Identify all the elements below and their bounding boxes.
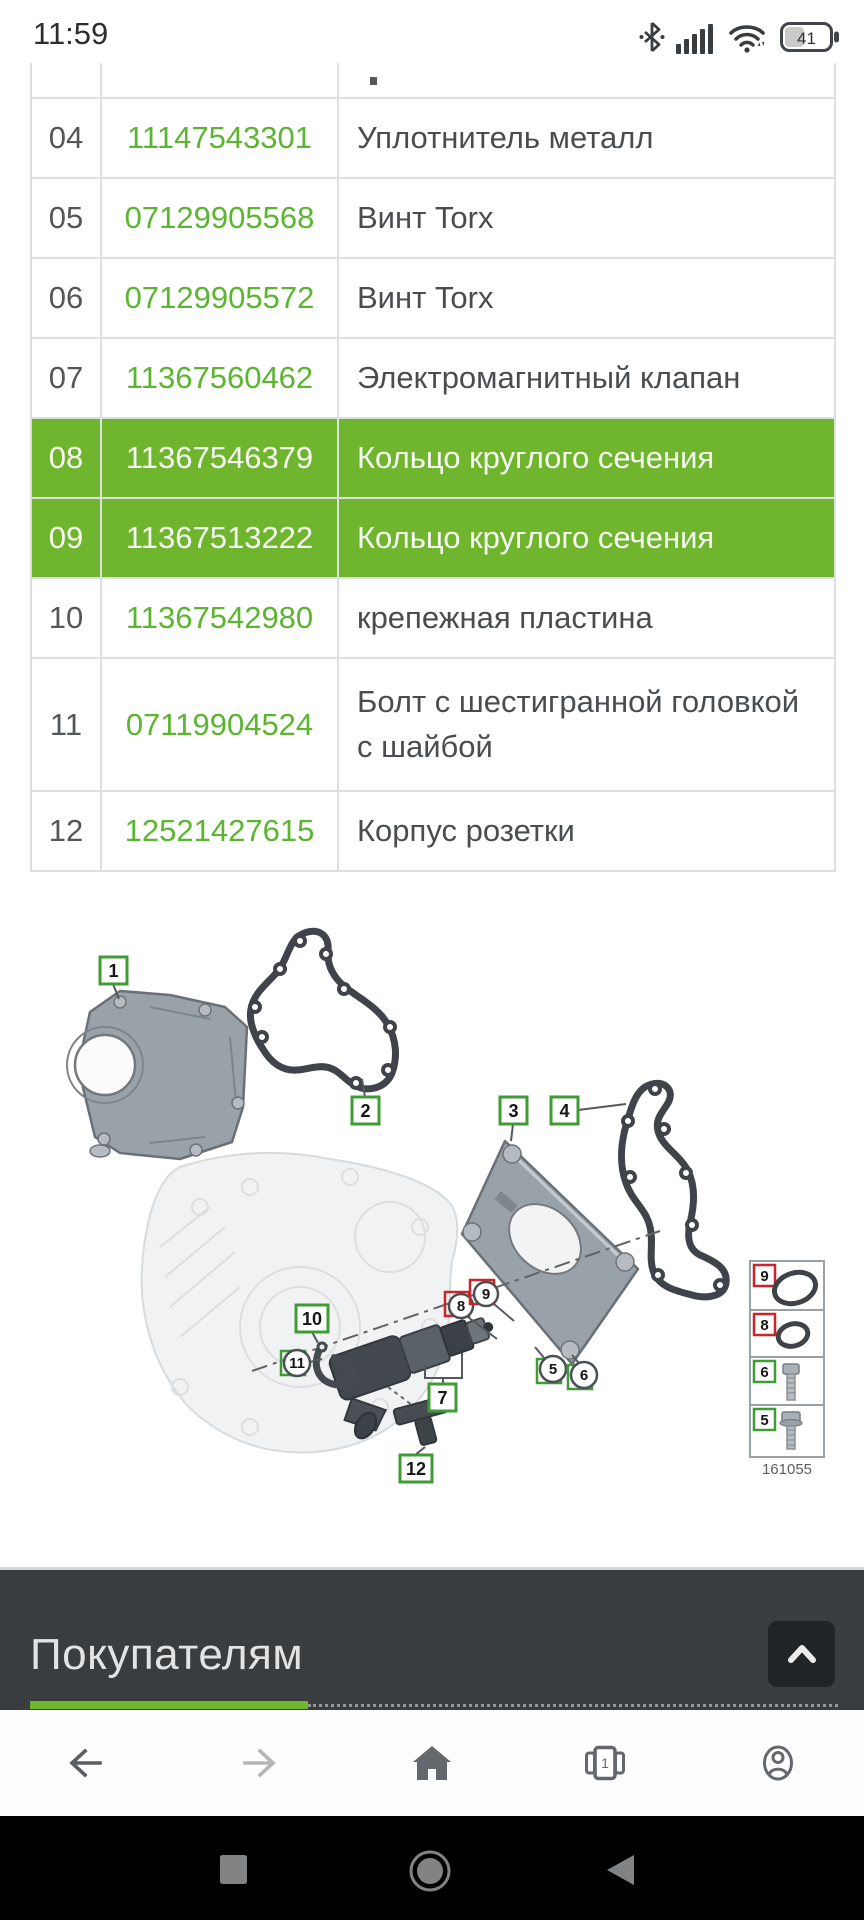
android-home-button[interactable] — [408, 1849, 452, 1893]
table-row-truncated — [31, 63, 835, 98]
truncated-text-fragment — [370, 77, 377, 85]
status-bar: 11:59 — [0, 0, 864, 63]
part-number-link[interactable]: 12521427615 — [125, 813, 315, 848]
svg-text:4: 4 — [559, 1101, 569, 1121]
table-row: 1212521427615Корпус розетки — [31, 791, 835, 871]
diagram-legend: 9 8 6 5 — [750, 1261, 824, 1478]
figure-number: 161055 — [762, 1461, 812, 1478]
table-row: 0411147543301Уплотнитель металл — [31, 98, 835, 178]
legend-label: 9 — [760, 1268, 768, 1285]
svg-text:5: 5 — [549, 1361, 557, 1378]
callout-4[interactable]: 4 — [551, 1097, 578, 1124]
android-navigation-bar — [0, 1816, 864, 1920]
row-number-cell: 10 — [31, 578, 101, 658]
footer-section: Покупателям — [0, 1570, 864, 1710]
svg-text:10: 10 — [302, 1309, 322, 1329]
profile-button[interactable] — [756, 1741, 800, 1785]
browser-toolbar: 1 — [0, 1710, 864, 1816]
tabs-button[interactable]: 1 — [583, 1741, 627, 1785]
part-description-cell: крепежная пластина — [338, 578, 835, 658]
back-button[interactable] — [64, 1741, 108, 1785]
cellular-signal-icon — [676, 20, 716, 54]
status-icons: 41 — [639, 20, 842, 54]
part-description-cell: Кольцо круглого сечения — [338, 498, 835, 578]
part-number-link[interactable]: 07129905568 — [125, 200, 315, 235]
part-number-link[interactable]: 07119904524 — [126, 707, 313, 742]
svg-text:2: 2 — [360, 1101, 370, 1121]
callout-7[interactable]: 7 — [429, 1384, 456, 1411]
legend-label: 6 — [760, 1364, 768, 1381]
footer-dotted-line — [308, 1704, 838, 1707]
parts-table: 0411147543301Уплотнитель металл050712990… — [30, 63, 834, 872]
row-number-cell: 06 — [31, 258, 101, 338]
callout-1[interactable]: 1 — [100, 957, 127, 984]
legend-label: 5 — [760, 1412, 768, 1429]
table-row: 1011367542980крепежная пластина — [31, 578, 835, 658]
parts-diagram: 1 2 3 4 5 — [0, 907, 864, 1567]
part-number-link[interactable]: 11367560462 — [126, 360, 313, 395]
svg-text:3: 3 — [508, 1101, 518, 1121]
table-row: 1107119904524Болт с шестигранной головко… — [31, 658, 835, 791]
clock: 11:59 — [33, 16, 108, 52]
part-description-cell: Болт с шестигранной головкой с шайбой — [338, 658, 835, 791]
callout-5[interactable]: 5 — [537, 1356, 566, 1383]
callout-3[interactable]: 3 — [500, 1097, 527, 1124]
callout-2[interactable]: 2 — [352, 1097, 379, 1124]
svg-text:7: 7 — [437, 1388, 447, 1408]
row-number-cell: 09 — [31, 498, 101, 578]
table-row: 0911367513222Кольцо круглого сечения — [31, 498, 835, 578]
row-number-cell: 11 — [31, 658, 101, 791]
recents-button[interactable] — [218, 1854, 250, 1886]
part-number-link[interactable]: 11367542980 — [126, 600, 313, 635]
phone-screen: 11:59 — [0, 0, 864, 1920]
chevron-up-icon — [785, 1643, 819, 1665]
table-row: 0607129905572Винт Torx — [31, 258, 835, 338]
svg-text:9: 9 — [482, 1286, 490, 1303]
part-description-cell: Винт Torx — [338, 178, 835, 258]
footer-green-underline — [30, 1701, 308, 1709]
callout-9[interactable]: 9 — [470, 1280, 498, 1306]
row-number-cell: 04 — [31, 98, 101, 178]
tab-count: 1 — [601, 1755, 609, 1771]
svg-text:12: 12 — [406, 1459, 426, 1479]
callout-6[interactable]: 6 — [568, 1362, 597, 1389]
part-number-link[interactable]: 11367513222 — [126, 520, 313, 555]
part-description-cell: Винт Torx — [338, 258, 835, 338]
svg-text:8: 8 — [457, 1298, 465, 1315]
part-description-cell: Электромагнитный клапан — [338, 338, 835, 418]
wifi-icon — [727, 20, 769, 54]
callout-12[interactable]: 12 — [400, 1455, 432, 1482]
scroll-to-top-button[interactable] — [768, 1621, 835, 1687]
bluetooth-icon — [639, 20, 665, 54]
svg-text:6: 6 — [580, 1367, 588, 1384]
table-row: 0811367546379Кольцо круглого сечения — [31, 418, 835, 498]
part-description-cell: Корпус розетки — [338, 791, 835, 871]
svg-text:11: 11 — [289, 1355, 305, 1372]
svg-text:1: 1 — [108, 961, 118, 981]
home-button[interactable] — [410, 1741, 454, 1785]
android-back-button[interactable] — [604, 1853, 638, 1887]
row-number-cell: 07 — [31, 338, 101, 418]
callout-10[interactable]: 10 — [296, 1305, 328, 1332]
row-number-cell: 12 — [31, 791, 101, 871]
part-number-link[interactable]: 07129905572 — [125, 280, 315, 315]
table-row: 0507129905568Винт Torx — [31, 178, 835, 258]
part-description-cell: Кольцо круглого сечения — [338, 418, 835, 498]
forward-button[interactable] — [237, 1741, 281, 1785]
part-4-gasket — [622, 1083, 727, 1297]
battery-percent: 41 — [797, 29, 816, 48]
table-row: 0711367560462Электромагнитный клапан — [31, 338, 835, 418]
part-number-link[interactable]: 11147543301 — [127, 120, 312, 155]
part-number-link[interactable]: 11367546379 — [126, 440, 313, 475]
part-description-cell: Уплотнитель металл — [338, 98, 835, 178]
row-number-cell: 05 — [31, 178, 101, 258]
battery-icon: 41 — [780, 20, 842, 54]
footer-accordion-customers[interactable]: Покупателям — [30, 1630, 303, 1680]
legend-label: 8 — [760, 1317, 768, 1334]
row-number-cell: 08 — [31, 418, 101, 498]
